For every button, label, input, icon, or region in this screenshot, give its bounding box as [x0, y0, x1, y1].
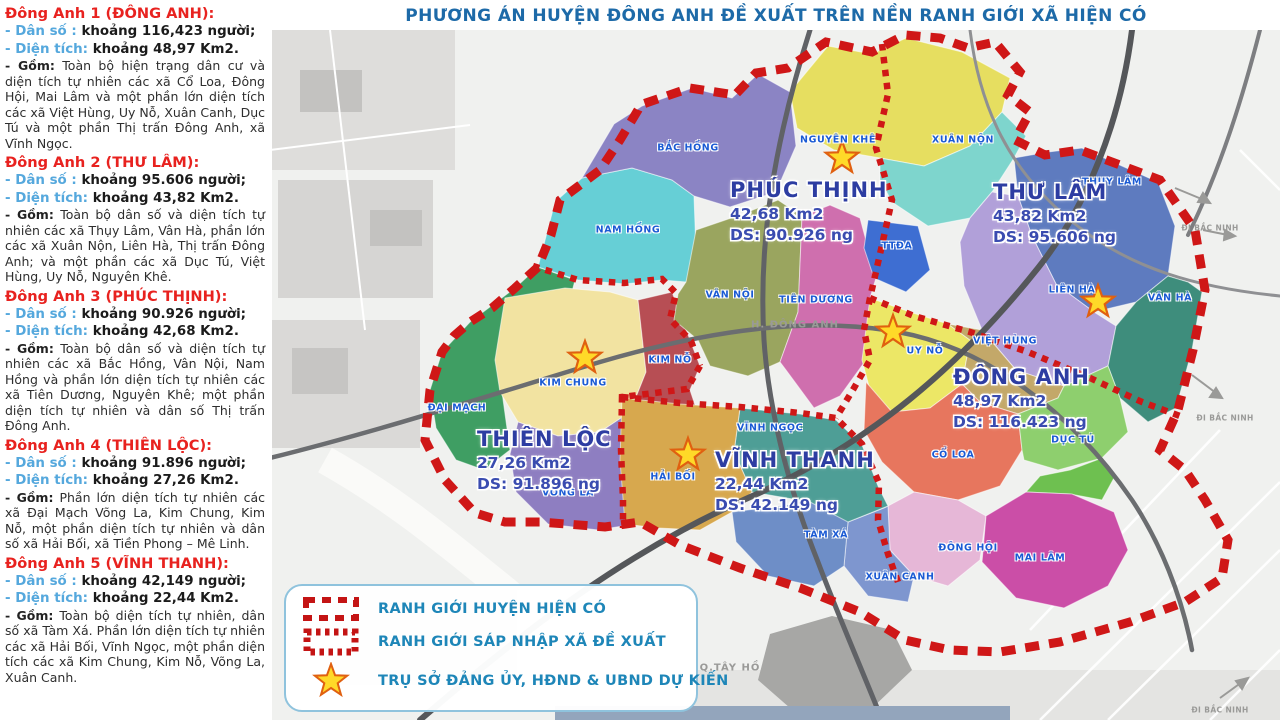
population-value: khoảng 90.926 người; — [81, 307, 246, 322]
area-value: khoảng 48,97 Km2. — [93, 42, 239, 57]
commune-heading: Đông Anh 4 (THIÊN LỘC): — [5, 437, 265, 455]
star-icon — [300, 662, 362, 700]
composition-paragraph: - Gồm: Toàn bộ dân số và diện tích tự nh… — [5, 341, 265, 434]
population-line: - Dân số : khoảng 91.896 người; — [5, 455, 265, 472]
dashed-boundary-icon — [300, 596, 362, 622]
sidebar: Đông Anh 1 (ĐÔNG ANH): - Dân số : khoảng… — [0, 0, 272, 720]
area-label: - Diện tích: — [5, 191, 88, 206]
area-line: - Diện tích: khoảng 27,26 Km2. — [5, 472, 265, 489]
dotted-boundary-icon — [300, 627, 362, 657]
composition-label: - Gồm: — [5, 207, 54, 222]
population-label: - Dân số : — [5, 574, 77, 589]
commune-heading: Đông Anh 1 (ĐÔNG ANH): — [5, 5, 265, 23]
commune-summary-4: Đông Anh 4 (THIÊN LỘC): - Dân số : khoản… — [5, 437, 265, 552]
population-label: - Dân số : — [5, 456, 77, 471]
composition-label: - Gồm: — [5, 341, 54, 356]
commune-heading: Đông Anh 3 (PHÚC THỊNH): — [5, 288, 265, 306]
commune-summary-1: Đông Anh 1 (ĐÔNG ANH): - Dân số : khoảng… — [5, 5, 265, 151]
legend: RANH GIỚI HUYỆN HIỆN CÓ RANH GIỚI SÁP NH… — [284, 584, 698, 712]
legend-label: RANH GIỚI HUYỆN HIỆN CÓ — [378, 601, 606, 617]
legend-row-district-boundary: RANH GIỚI HUYỆN HIỆN CÓ — [300, 596, 682, 622]
composition-label: - Gồm: — [5, 608, 53, 623]
population-value: khoảng 91.896 người; — [81, 456, 246, 471]
population-label: - Dân số : — [5, 173, 77, 188]
commune-summary-3: Đông Anh 3 (PHÚC THỊNH): - Dân số : khoả… — [5, 288, 265, 434]
area-line: - Diện tích: khoảng 48,97 Km2. — [5, 41, 265, 58]
area-line: - Diện tích: khoảng 22,44 Km2. — [5, 590, 265, 607]
page-title: PHƯƠNG ÁN HUYỆN ĐÔNG ANH ĐỀ XUẤT TRÊN NỀ… — [272, 6, 1280, 26]
composition-paragraph: - Gồm: Phần lớn diện tích tự nhiên các x… — [5, 490, 265, 552]
commune-heading: Đông Anh 5 (VĨNH THANH): — [5, 555, 265, 573]
population-line: - Dân số : khoảng 42,149 người; — [5, 573, 265, 590]
composition-paragraph: - Gồm: Toàn bộ hiện trạng dân cư và diện… — [5, 58, 265, 151]
composition-paragraph: - Gồm: Toàn bộ diện tích tự nhiên, dân s… — [5, 608, 265, 686]
legend-row-hq-star: TRỤ SỞ ĐẢNG ỦY, HĐND & UBND DỰ KIẾN — [300, 662, 682, 700]
slide: Đông Anh 1 (ĐÔNG ANH): - Dân số : khoảng… — [0, 0, 1280, 720]
composition-label: - Gồm: — [5, 490, 53, 505]
population-value: khoảng 42,149 người; — [81, 574, 246, 589]
area-line: - Diện tích: khoảng 42,68 Km2. — [5, 323, 265, 340]
population-line: - Dân số : khoảng 95.606 người; — [5, 172, 265, 189]
area-label: - Diện tích: — [5, 42, 88, 57]
population-line: - Dân số : khoảng 90.926 người; — [5, 306, 265, 323]
area-label: - Diện tích: — [5, 473, 88, 488]
composition-label: - Gồm: — [5, 58, 55, 73]
legend-row-merge-boundary: RANH GIỚI SÁP NHẬP XÃ ĐỀ XUẤT — [300, 627, 682, 657]
area-value: khoảng 22,44 Km2. — [93, 591, 239, 606]
population-label: - Dân số : — [5, 24, 77, 39]
population-value: khoảng 95.606 người; — [81, 173, 246, 188]
area-value: khoảng 42,68 Km2. — [93, 324, 239, 339]
area-label: - Diện tích: — [5, 591, 88, 606]
legend-label: TRỤ SỞ ĐẢNG ỦY, HĐND & UBND DỰ KIẾN — [378, 673, 729, 689]
commune-heading: Đông Anh 2 (THƯ LÂM): — [5, 154, 265, 172]
area-line: - Diện tích: khoảng 43,82 Km2. — [5, 190, 265, 207]
population-label: - Dân số : — [5, 307, 77, 322]
legend-label: RANH GIỚI SÁP NHẬP XÃ ĐỀ XUẤT — [378, 634, 666, 650]
area-value: khoảng 43,82 Km2. — [93, 191, 239, 206]
population-value: khoảng 116,423 người; — [81, 24, 255, 39]
composition-paragraph: - Gồm: Toàn bộ dân số và diện tích tự nh… — [5, 207, 265, 285]
commune-summary-2: Đông Anh 2 (THƯ LÂM): - Dân số : khoảng … — [5, 154, 265, 285]
area-value: khoảng 27,26 Km2. — [93, 473, 239, 488]
population-line: - Dân số : khoảng 116,423 người; — [5, 23, 265, 40]
commune-summary-5: Đông Anh 5 (VĨNH THANH): - Dân số : khoả… — [5, 555, 265, 686]
area-label: - Diện tích: — [5, 324, 88, 339]
